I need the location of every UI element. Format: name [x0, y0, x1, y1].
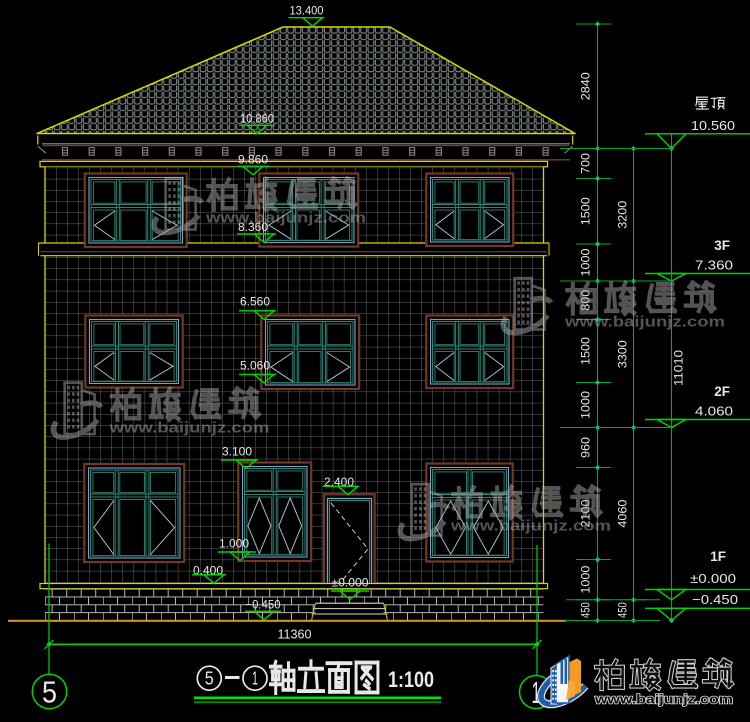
svg-text:960: 960: [579, 437, 593, 458]
svg-text:1.000: 1.000: [219, 539, 249, 551]
svg-text:www.baijunjz.com: www.baijunjz.com: [108, 421, 269, 437]
svg-text:1000: 1000: [579, 565, 593, 593]
svg-text:1:100: 1:100: [388, 667, 434, 692]
svg-text:11360: 11360: [278, 628, 312, 642]
svg-text:www.baijunjz.com: www.baijunjz.com: [450, 519, 611, 535]
svg-text:5: 5: [42, 675, 57, 710]
svg-text:10.560: 10.560: [691, 118, 735, 133]
svg-text:3200: 3200: [616, 201, 630, 229]
svg-text:2F: 2F: [714, 384, 730, 399]
svg-text:−0.450: −0.450: [692, 592, 738, 607]
svg-text:−0.450: −0.450: [246, 600, 281, 612]
svg-text:www.baijunjz.com: www.baijunjz.com: [564, 315, 725, 331]
svg-text:5.060: 5.060: [240, 361, 270, 373]
svg-text:4.060: 4.060: [695, 404, 733, 419]
svg-text:www.baijunjz.com: www.baijunjz.com: [594, 692, 733, 707]
svg-text:450: 450: [579, 602, 593, 618]
svg-text:1000: 1000: [579, 391, 593, 419]
svg-text:www.baijunjz.com: www.baijunjz.com: [205, 211, 366, 227]
svg-text:6.560: 6.560: [240, 297, 270, 309]
svg-text:11010: 11010: [672, 350, 686, 386]
svg-text:3300: 3300: [616, 340, 630, 368]
svg-text:2840: 2840: [579, 72, 593, 100]
svg-text:0.400: 0.400: [193, 566, 223, 578]
svg-text:4060: 4060: [616, 499, 630, 527]
svg-text:3F: 3F: [714, 238, 730, 253]
svg-text:5: 5: [205, 669, 214, 689]
svg-text:450: 450: [616, 602, 630, 618]
svg-text:3.100: 3.100: [222, 447, 252, 459]
svg-text:1F: 1F: [710, 549, 726, 564]
svg-text:1000: 1000: [579, 248, 593, 276]
svg-text:1: 1: [252, 669, 258, 689]
svg-text:13.400: 13.400: [290, 6, 324, 18]
svg-text:±0.000: ±0.000: [690, 571, 736, 586]
svg-text:1500: 1500: [579, 337, 593, 365]
svg-text:700: 700: [579, 153, 593, 174]
svg-text:1500: 1500: [579, 197, 593, 225]
svg-text:±0.000: ±0.000: [332, 578, 369, 590]
svg-text:10.860: 10.860: [240, 114, 274, 126]
svg-text:7.360: 7.360: [695, 258, 733, 273]
svg-text:9.860: 9.860: [238, 155, 268, 167]
